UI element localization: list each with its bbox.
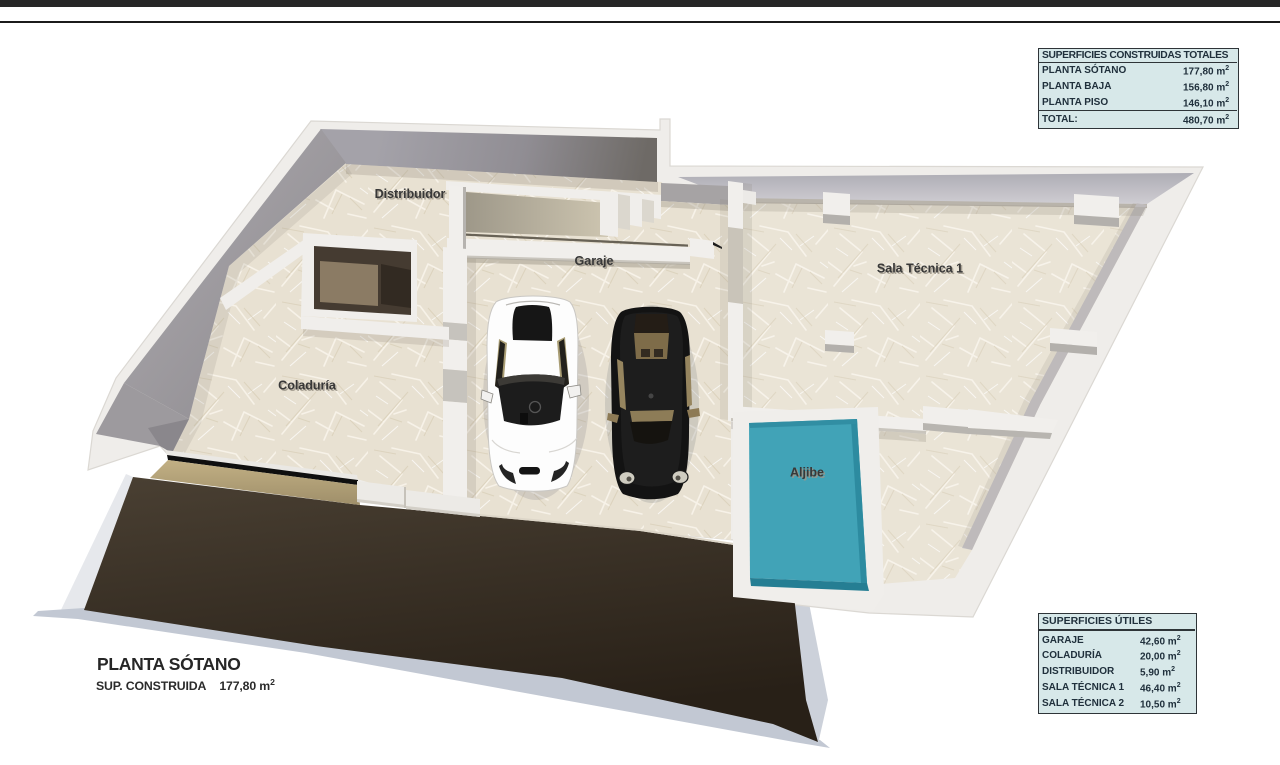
svg-text:Coladuría: Coladuría <box>278 379 337 393</box>
svg-text:Garaje: Garaje <box>575 254 614 268</box>
svg-text:Sala Técnica 1: Sala Técnica 1 <box>877 262 963 276</box>
svg-text:Aljibe: Aljibe <box>790 466 824 480</box>
svg-text:Distribuidor: Distribuidor <box>375 187 446 201</box>
